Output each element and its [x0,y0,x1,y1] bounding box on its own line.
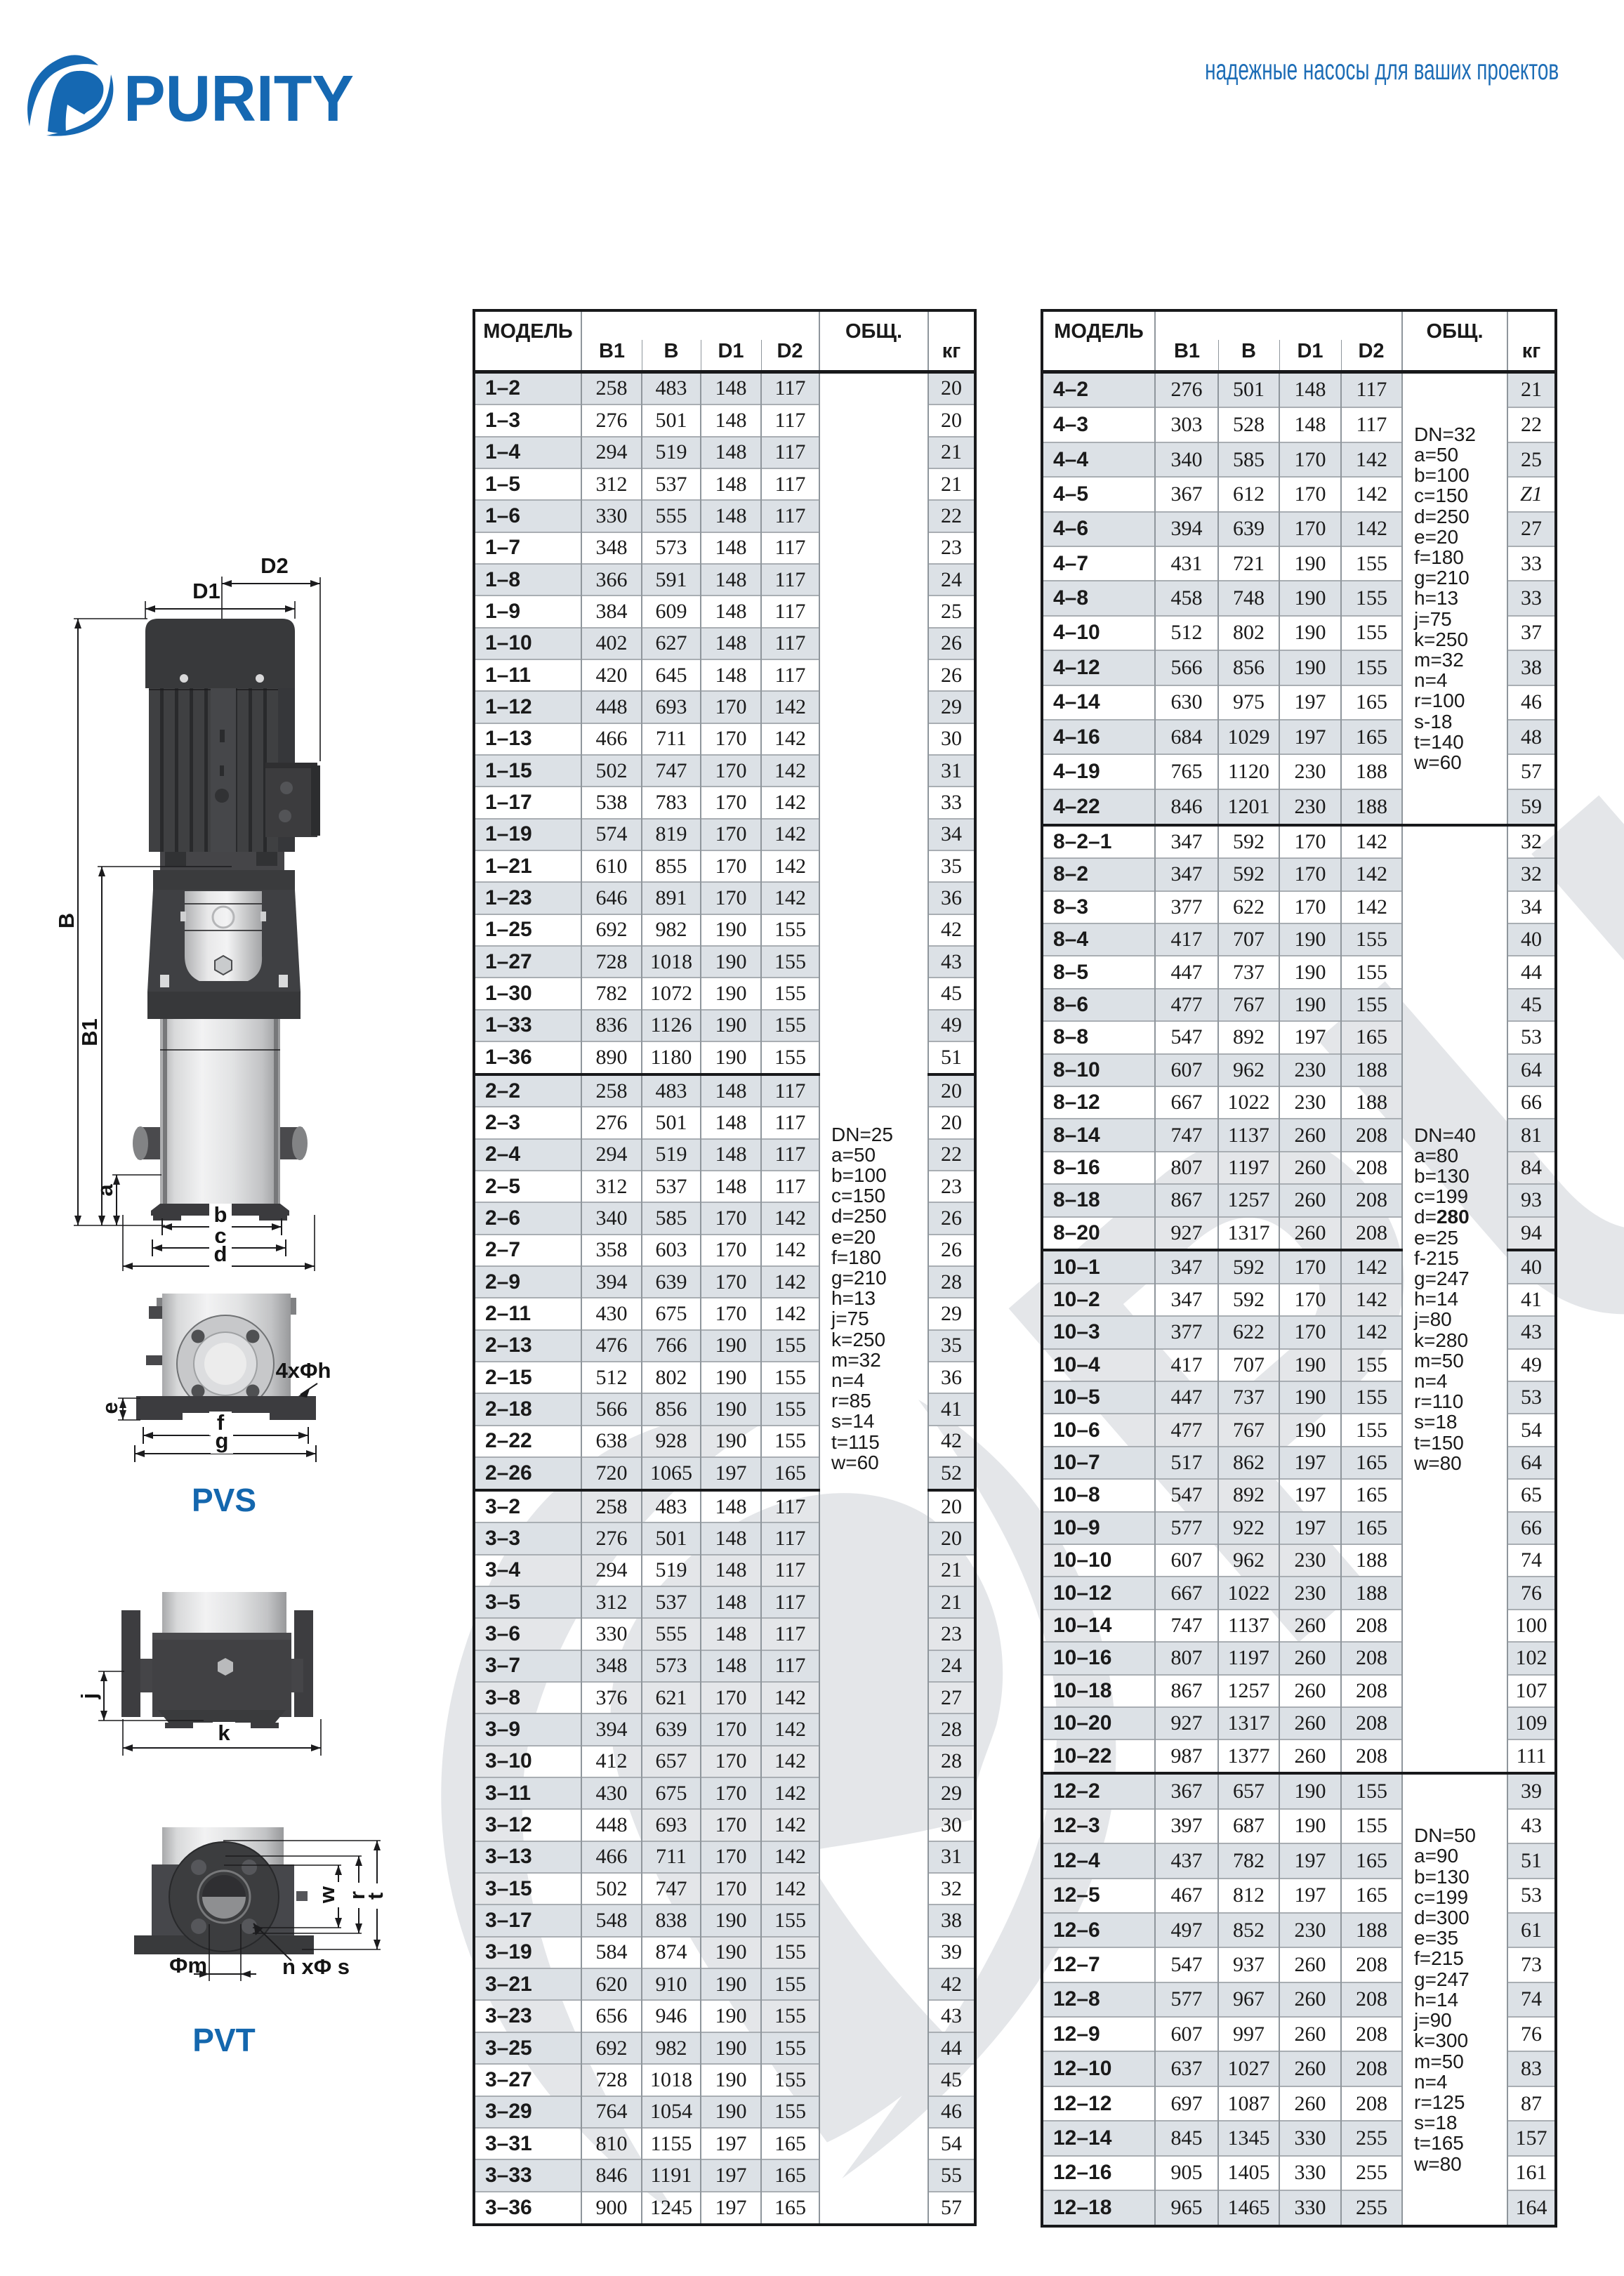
svg-text:w: w [315,1886,339,1904]
svg-text:k: k [218,1721,230,1745]
svg-text:t: t [363,1893,388,1900]
svg-text:B: B [54,913,79,928]
svg-text:PVS: PVS [192,1482,256,1518]
svg-text:PURITY: PURITY [124,62,354,135]
svg-text:a: a [93,1184,117,1197]
svg-text:e: e [98,1402,122,1414]
svg-text:PVT: PVT [192,2022,255,2058]
svg-text:g: g [216,1428,229,1453]
svg-text:4xΦh: 4xΦh [276,1358,331,1383]
svg-text:Фm: Фm [169,1953,207,1978]
svg-text:B1: B1 [77,1018,102,1046]
svg-text:n xΦ s: n xΦ s [282,1954,350,1979]
svg-text:D1: D1 [192,579,220,603]
svg-text:j: j [77,1693,101,1700]
svg-text:D2: D2 [260,555,289,578]
svg-text:d: d [214,1242,227,1266]
